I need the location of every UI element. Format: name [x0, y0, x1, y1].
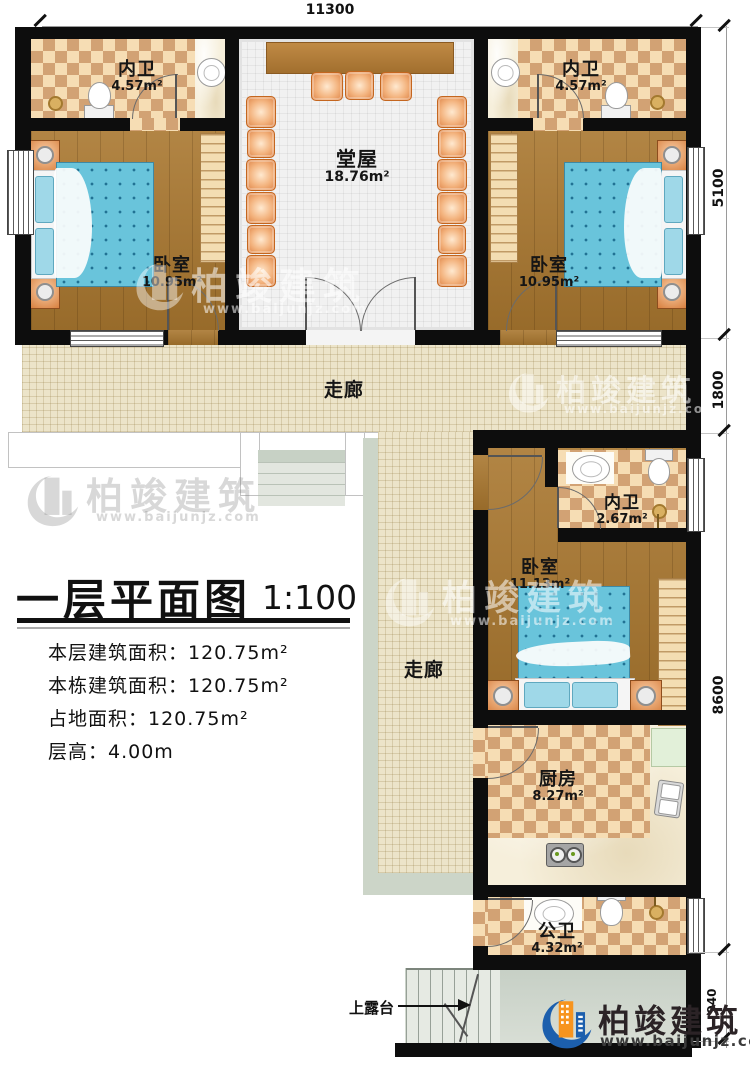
dimension-tick: [33, 14, 46, 27]
door-leaf: [488, 455, 542, 457]
door-leaf: [488, 898, 532, 900]
window: [7, 150, 34, 235]
wall-south-upper: [218, 330, 306, 345]
dimension-right-8600: 8600: [711, 671, 727, 719]
room-name: 内卫: [541, 60, 621, 80]
stool: [438, 129, 466, 158]
room-label-bath-small: 内卫 2.67m²: [582, 494, 662, 528]
door-gap: [130, 118, 180, 131]
terrace-arrow-head: [458, 999, 471, 1011]
pillow: [35, 176, 54, 223]
wall-southwing-north: [473, 430, 686, 448]
wall-bedroom-kitchen: [488, 710, 686, 725]
room-label-kitchen: 厨房 8.27m²: [518, 770, 598, 805]
room-name: 走廊: [304, 380, 384, 401]
wall-bath-right: [583, 118, 686, 131]
corridor-vertical-floor: [378, 432, 473, 873]
chair: [246, 96, 276, 128]
room-name: 厨房: [518, 770, 598, 790]
dimension-tick: [689, 14, 702, 27]
fridge-icon: [651, 728, 688, 767]
dimension-right-1800: 1800: [711, 366, 727, 414]
stool: [247, 129, 275, 158]
floor-drain-icon: [48, 96, 63, 111]
corridor-vertical-edge: [363, 438, 378, 895]
chair: [246, 192, 276, 224]
chair: [437, 159, 467, 191]
chair: [437, 255, 467, 287]
watermark-logo-icon: [24, 470, 80, 530]
watermark-logo-icon: [506, 368, 550, 416]
chair: [437, 96, 467, 128]
room-area: 4.32m²: [517, 942, 597, 957]
room-label-corridor-v: 走廊: [384, 660, 464, 681]
wall-north: [15, 27, 701, 39]
extension-line: [701, 338, 729, 339]
sink-icon: [572, 455, 610, 483]
door-gap: [473, 900, 488, 946]
wall-bath-small-stub: [545, 448, 558, 487]
wall-bath-right: [488, 118, 533, 131]
terrace-arrow-line: [398, 1005, 460, 1007]
room-label-bedroom-right: 卧室 10.95m²: [509, 256, 589, 291]
room-area: 4.57m²: [541, 80, 621, 95]
room-area: 10.95m²: [509, 276, 589, 291]
toilet-icon: [600, 898, 623, 926]
wardrobe: [658, 578, 688, 726]
window: [687, 147, 705, 235]
watermark-site: www.baijunjz.com: [564, 402, 719, 416]
watermark-site: www.baijunjz.com: [96, 510, 261, 525]
chair: [246, 159, 276, 191]
pillow: [664, 176, 683, 223]
burner: [550, 847, 566, 863]
logo-site: www.baijunjz.com: [600, 1032, 750, 1050]
stat-building-area: 本栋建筑面积：120.75m²: [48, 671, 289, 698]
terrace-label: 上露台: [330, 997, 394, 1018]
porch-pillar: [345, 432, 365, 496]
door-leaf: [537, 74, 539, 118]
wall-kitchen-bath: [473, 885, 686, 897]
chair: [437, 192, 467, 224]
window: [687, 898, 705, 954]
title-scale: 1:100: [262, 578, 357, 617]
watermark: 柏竣建筑 www.baijunjz.com: [24, 470, 80, 530]
logo-icon: [538, 994, 594, 1052]
bed-sheet: [624, 168, 662, 278]
door-gap: [473, 455, 488, 510]
sink-basin: [660, 783, 681, 800]
watermark: 柏竣建筑 www.baijunjz.com: [133, 258, 185, 314]
lamp-icon: [663, 146, 681, 164]
floor-plan: 内卫 4.57m² 内卫 4.57m² 堂屋 18.76m² 卧室 10.95m…: [0, 0, 750, 1066]
chair: [311, 72, 343, 101]
floor-drain-icon: [649, 905, 664, 920]
watermark: 柏竣建筑 www.baijunjz.com: [382, 572, 436, 630]
floor-drain-icon: [650, 95, 665, 110]
wardrobe: [200, 133, 228, 263]
lamp-icon: [663, 283, 681, 301]
dimension-tick: [717, 424, 730, 437]
pillow: [35, 228, 54, 275]
chair: [380, 72, 412, 101]
dimension-right-5100: 5100: [711, 164, 727, 212]
door-leaf: [557, 487, 559, 528]
kitchen-sink-icon: [654, 779, 685, 818]
room-name: 内卫: [97, 60, 177, 80]
sink-icon: [491, 58, 520, 87]
pillow: [572, 682, 618, 708]
wall-bath-small-south: [558, 528, 686, 542]
wardrobe: [490, 133, 518, 263]
lamp-icon: [36, 146, 54, 164]
room-name: 卧室: [509, 256, 589, 276]
door-leaf: [414, 277, 416, 330]
room-label-bath-public: 公卫 4.32m²: [517, 922, 597, 957]
door-gap: [533, 118, 583, 131]
room-area: 8.27m²: [518, 790, 598, 805]
extension-line: [701, 433, 729, 434]
stat-storey-height: 层高：4.00m: [48, 737, 174, 764]
room-area: 4.57m²: [97, 80, 177, 95]
watermark-site: www.baijunjz.com: [203, 302, 368, 317]
stove-icon: [546, 843, 584, 867]
corridor-vertical-end: [363, 873, 473, 895]
stool: [345, 71, 374, 100]
window: [70, 330, 164, 347]
watermark-site: www.baijunjz.com: [450, 614, 615, 629]
title-underline-thin: [17, 627, 350, 629]
room-name: 走廊: [384, 660, 464, 681]
dimension-tick: [717, 19, 730, 32]
room-label-corridor-h: 走廊: [304, 380, 384, 401]
stool: [247, 225, 275, 254]
wall-bath-left: [31, 118, 130, 131]
dimension-top: 11300: [300, 2, 360, 18]
door-leaf: [488, 726, 538, 728]
room-area: 2.67m²: [582, 513, 662, 528]
extension-line: [701, 27, 729, 28]
stairs: [406, 968, 500, 1045]
extension-line: [690, 952, 729, 953]
wall-hall-right: [474, 27, 488, 345]
burner: [566, 847, 582, 863]
room-area: 18.76m²: [317, 170, 397, 186]
dimension-line-top: [42, 26, 698, 27]
title-underline: [17, 618, 350, 623]
window: [556, 330, 662, 347]
wall-south-upper: [660, 330, 686, 345]
stat-land-area: 占地面积：120.75m²: [48, 704, 249, 731]
hall-door-opening: [306, 330, 415, 345]
lamp-icon: [493, 686, 513, 706]
wall-south-upper: [15, 330, 70, 345]
altar-table: [266, 42, 454, 74]
room-name: 公卫: [517, 922, 597, 942]
door-gap: [168, 330, 218, 345]
room-label-hall: 堂屋 18.76m²: [317, 148, 397, 186]
wall-bath-left: [180, 118, 225, 131]
stat-floor-area: 本层建筑面积：120.75m²: [48, 638, 289, 665]
sink-basin: [658, 799, 679, 816]
toilet-icon: [648, 458, 670, 485]
watermark: 柏竣建筑 www.baijunjz.com: [506, 368, 550, 416]
room-label-bath-right: 内卫 4.57m²: [541, 60, 621, 95]
dimension-tick: [717, 943, 730, 956]
room-label-bath-left: 内卫 4.57m²: [97, 60, 177, 95]
window: [687, 458, 705, 532]
lamp-icon: [636, 686, 656, 706]
room-name: 堂屋: [317, 148, 397, 170]
entrance-steps: [258, 450, 345, 506]
logo: 柏竣建筑 www.baijunjz.com: [538, 992, 748, 1054]
watermark-logo-icon: [382, 572, 436, 630]
wall-bath-public-south: [473, 955, 686, 970]
pillow: [524, 682, 570, 708]
stool: [438, 225, 466, 254]
wall-south-upper: [415, 330, 500, 345]
door-gap: [500, 330, 556, 345]
door-gap: [473, 728, 488, 778]
watermark-logo-icon: [133, 258, 185, 314]
lamp-icon: [36, 283, 54, 301]
room-name: 内卫: [582, 494, 662, 513]
sink-icon: [197, 58, 226, 87]
pillow: [664, 228, 683, 275]
